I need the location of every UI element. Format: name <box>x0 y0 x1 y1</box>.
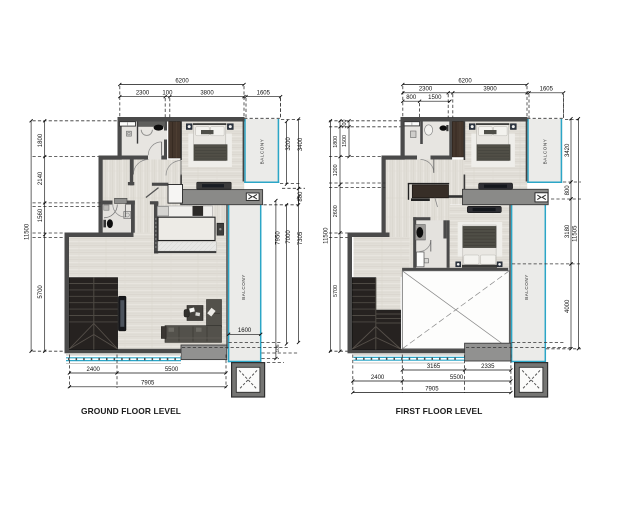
svg-text:1560: 1560 <box>38 208 44 222</box>
svg-text:2335: 2335 <box>481 364 495 370</box>
svg-text:3800: 3800 <box>200 90 214 96</box>
svg-text:800: 800 <box>565 185 571 196</box>
svg-text:1500: 1500 <box>428 95 442 101</box>
svg-text:BALCONY: BALCONY <box>241 274 246 300</box>
svg-text:6200: 6200 <box>458 78 472 84</box>
svg-text:2300: 2300 <box>419 87 433 93</box>
svg-text:7950: 7950 <box>276 231 282 245</box>
svg-text:3900: 3900 <box>483 87 497 93</box>
svg-text:5700: 5700 <box>38 285 44 299</box>
svg-text:5500: 5500 <box>165 367 179 373</box>
svg-text:BALCONY: BALCONY <box>524 274 529 300</box>
svg-text:3400: 3400 <box>298 137 304 151</box>
svg-text:7905: 7905 <box>141 381 155 387</box>
svg-text:105: 105 <box>275 344 281 352</box>
svg-text:2400: 2400 <box>87 367 101 373</box>
svg-text:800: 800 <box>406 95 417 101</box>
svg-text:3420: 3420 <box>565 143 571 157</box>
svg-text:7000: 7000 <box>286 230 292 244</box>
svg-text:3165: 3165 <box>427 364 441 370</box>
svg-text:BALCONY: BALCONY <box>260 139 265 165</box>
svg-text:BALCONY: BALCONY <box>543 139 548 165</box>
svg-text:1800: 1800 <box>333 136 339 148</box>
svg-text:11505: 11505 <box>573 225 579 242</box>
svg-text:11500: 11500 <box>24 223 30 240</box>
svg-text:7305: 7305 <box>298 231 304 245</box>
svg-text:3200: 3200 <box>286 137 292 151</box>
svg-text:7905: 7905 <box>425 386 439 392</box>
svg-text:2300: 2300 <box>136 90 150 96</box>
svg-text:1200: 1200 <box>333 164 339 176</box>
svg-text:300: 300 <box>342 120 348 129</box>
svg-text:5700: 5700 <box>333 285 339 297</box>
svg-text:1500: 1500 <box>342 135 348 147</box>
svg-text:100: 100 <box>162 90 173 96</box>
svg-text:3180: 3180 <box>565 224 571 238</box>
svg-text:4000: 4000 <box>565 299 571 313</box>
svg-text:5500: 5500 <box>450 375 464 381</box>
svg-text:1600: 1600 <box>238 328 252 334</box>
svg-text:2400: 2400 <box>371 375 385 381</box>
svg-text:GROUND FLOOR LEVEL: GROUND FLOOR LEVEL <box>81 406 181 416</box>
svg-text:2140: 2140 <box>38 171 44 185</box>
svg-text:11500: 11500 <box>323 227 329 244</box>
svg-text:2600: 2600 <box>333 205 339 217</box>
svg-text:1605: 1605 <box>257 90 271 96</box>
svg-text:6200: 6200 <box>175 78 189 84</box>
svg-text:1605: 1605 <box>540 87 554 93</box>
svg-text:1800: 1800 <box>38 133 44 147</box>
svg-text:FIRST FLOOR LEVEL: FIRST FLOOR LEVEL <box>396 406 483 416</box>
